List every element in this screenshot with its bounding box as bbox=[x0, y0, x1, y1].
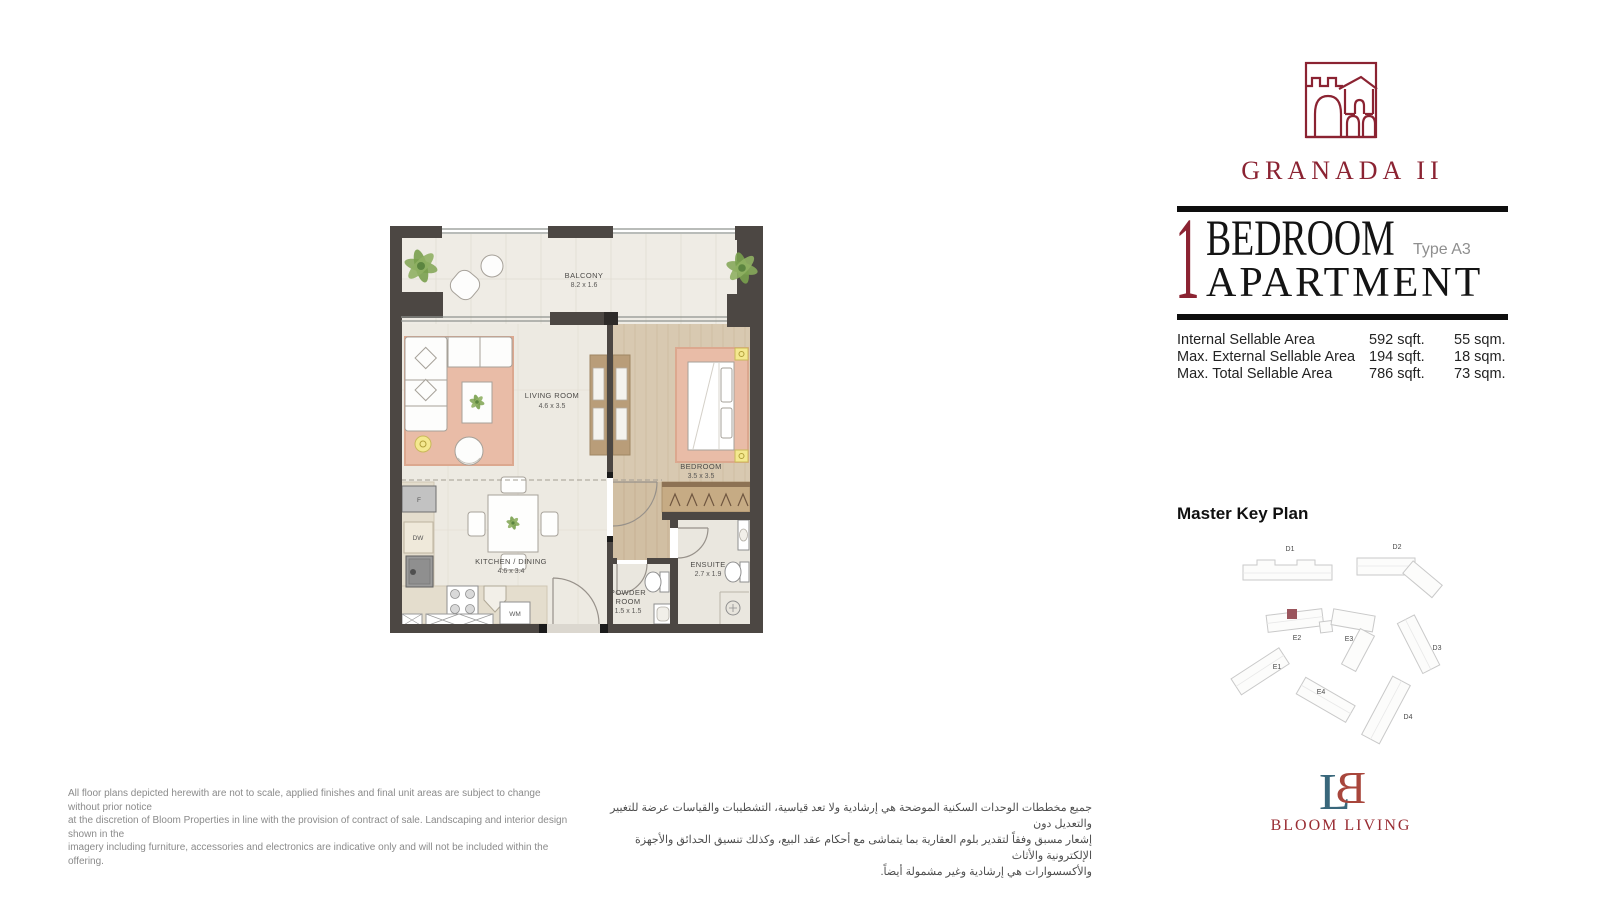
building-d4 bbox=[1362, 676, 1411, 744]
bedroom-label: BEDROOM bbox=[680, 462, 722, 471]
unit-location-marker bbox=[1287, 609, 1297, 619]
area-sqm: 18 sqm. bbox=[1454, 349, 1510, 366]
disclaimer-ar-line: إشعار مسبق وفقاً لتقدير بلوم العقارية بم… bbox=[600, 832, 1092, 864]
corridor-floor bbox=[613, 482, 670, 560]
unit-type: Type A3 bbox=[1413, 241, 1471, 259]
svg-text:B: B bbox=[1335, 762, 1366, 813]
powder-sink bbox=[654, 604, 672, 624]
washer-label: WM bbox=[509, 611, 521, 618]
powder-toilet bbox=[645, 572, 669, 592]
floor-plan-drawing: BALCONY 8.2 x 1.6 LIVING ROOM 4.6 x 3.5 … bbox=[388, 220, 763, 635]
building-label-d2: D2 bbox=[1393, 544, 1402, 551]
tv-unit bbox=[590, 355, 607, 455]
balcony-label: BALCONY bbox=[565, 271, 604, 280]
master-key-plan-title: Master Key Plan bbox=[1177, 504, 1308, 524]
ensuite-toilet bbox=[725, 562, 749, 582]
unit-title-line1: BEDROOM bbox=[1206, 215, 1395, 263]
living-room-label: LIVING ROOM bbox=[525, 391, 579, 400]
entrance-threshold bbox=[547, 624, 600, 633]
area-sqft: 592 sqft. bbox=[1369, 332, 1454, 349]
disclaimer-en-line: at the discretion of Bloom Properties in… bbox=[68, 814, 568, 841]
disclaimer-english: All floor plans depicted herewith are no… bbox=[68, 787, 568, 868]
table-row: Max. External Sellable Area 194 sqft. 18… bbox=[1177, 349, 1510, 366]
unit-title-line2: APARTMENT bbox=[1206, 263, 1483, 303]
disclaimer-arabic: جميع مخططات الوحدات السكنية الموضحة هي إ… bbox=[600, 800, 1092, 880]
building-label-e1: E1 bbox=[1273, 664, 1282, 671]
area-sqm: 55 sqm. bbox=[1454, 332, 1510, 349]
armchair bbox=[455, 437, 483, 465]
title-rule-bottom bbox=[1177, 314, 1508, 320]
bloom-living-logo: L B bbox=[1318, 760, 1366, 816]
building-label-e4: E4 bbox=[1317, 689, 1326, 696]
master-key-plan-map: D1 D2 E2 E3 D3 E1 E4 D4 bbox=[1218, 532, 1518, 750]
building-label-d1: D1 bbox=[1286, 546, 1295, 553]
area-label: Max. Total Sellable Area bbox=[1177, 366, 1369, 383]
fridge-label: F bbox=[417, 497, 421, 504]
kitchen-sink bbox=[406, 556, 433, 587]
unit-number: 1 bbox=[1175, 213, 1200, 307]
disclaimer-en-line: All floor plans depicted herewith are no… bbox=[68, 787, 568, 814]
powder-dim: 1.5 x 1.5 bbox=[615, 608, 642, 615]
brochure-page: BALCONY 8.2 x 1.6 LIVING ROOM 4.6 x 3.5 … bbox=[0, 0, 1600, 900]
building-e1 bbox=[1231, 648, 1289, 695]
bloom-monogram-icon: L B bbox=[1319, 762, 1366, 816]
disclaimer-ar-line: جميع مخططات الوحدات السكنية الموضحة هي إ… bbox=[600, 800, 1092, 832]
living-room-dim: 4.6 x 3.5 bbox=[539, 403, 566, 410]
building-label-d3: D3 bbox=[1433, 645, 1442, 652]
developer-name: BLOOM LIVING bbox=[1266, 817, 1416, 835]
disclaimer-en-line: imagery including furniture, accessories… bbox=[68, 841, 568, 868]
ensuite-dim: 2.7 x 1.9 bbox=[695, 571, 722, 578]
ensuite-label: ENSUITE bbox=[690, 560, 725, 569]
building-e4 bbox=[1296, 677, 1355, 722]
floor-plan: BALCONY 8.2 x 1.6 LIVING ROOM 4.6 x 3.5 … bbox=[388, 220, 763, 635]
building-d2 bbox=[1357, 558, 1442, 598]
bed bbox=[688, 362, 734, 450]
balcony-dim: 8.2 x 1.6 bbox=[571, 282, 598, 289]
building-label-d4: D4 bbox=[1404, 714, 1413, 721]
bedroom-closet bbox=[613, 355, 630, 455]
area-sqm: 73 sqm. bbox=[1454, 366, 1510, 383]
dishwasher-label: DW bbox=[413, 535, 425, 542]
ensuite-vanity bbox=[738, 520, 749, 550]
disclaimer-ar-line: والأكسسوارات هي إرشادية وغير مشمولة أيضا… bbox=[600, 864, 1092, 880]
table-row: Max. Total Sellable Area 786 sqft. 73 sq… bbox=[1177, 366, 1510, 383]
project-name: GRANADA II bbox=[1177, 156, 1508, 186]
bedroom-dim: 3.5 x 3.5 bbox=[688, 473, 715, 480]
stove bbox=[447, 586, 478, 617]
area-label: Max. External Sellable Area bbox=[1177, 349, 1369, 366]
kitchen-dim: 4.6 x 3.4 bbox=[498, 568, 525, 575]
castle-icon bbox=[1306, 63, 1377, 137]
area-table: Internal Sellable Area 592 sqft. 55 sqm.… bbox=[1177, 332, 1510, 383]
table-row: Internal Sellable Area 592 sqft. 55 sqm. bbox=[1177, 332, 1510, 349]
kitchen-label: KITCHEN / DINING bbox=[475, 557, 547, 566]
building-label-e3: E3 bbox=[1345, 636, 1354, 643]
floor-lamp bbox=[415, 436, 431, 452]
building-label-e2: E2 bbox=[1293, 635, 1302, 642]
balcony-table bbox=[481, 255, 503, 277]
area-sqft: 194 sqft. bbox=[1369, 349, 1454, 366]
wardrobe bbox=[662, 482, 750, 512]
area-sqft: 786 sqft. bbox=[1369, 366, 1454, 383]
area-label: Internal Sellable Area bbox=[1177, 332, 1369, 349]
powder-label-1: POWDER bbox=[610, 588, 646, 597]
building-d1 bbox=[1243, 560, 1332, 580]
powder-label-2: ROOM bbox=[616, 597, 641, 606]
granada-castle-logo bbox=[1299, 56, 1383, 144]
